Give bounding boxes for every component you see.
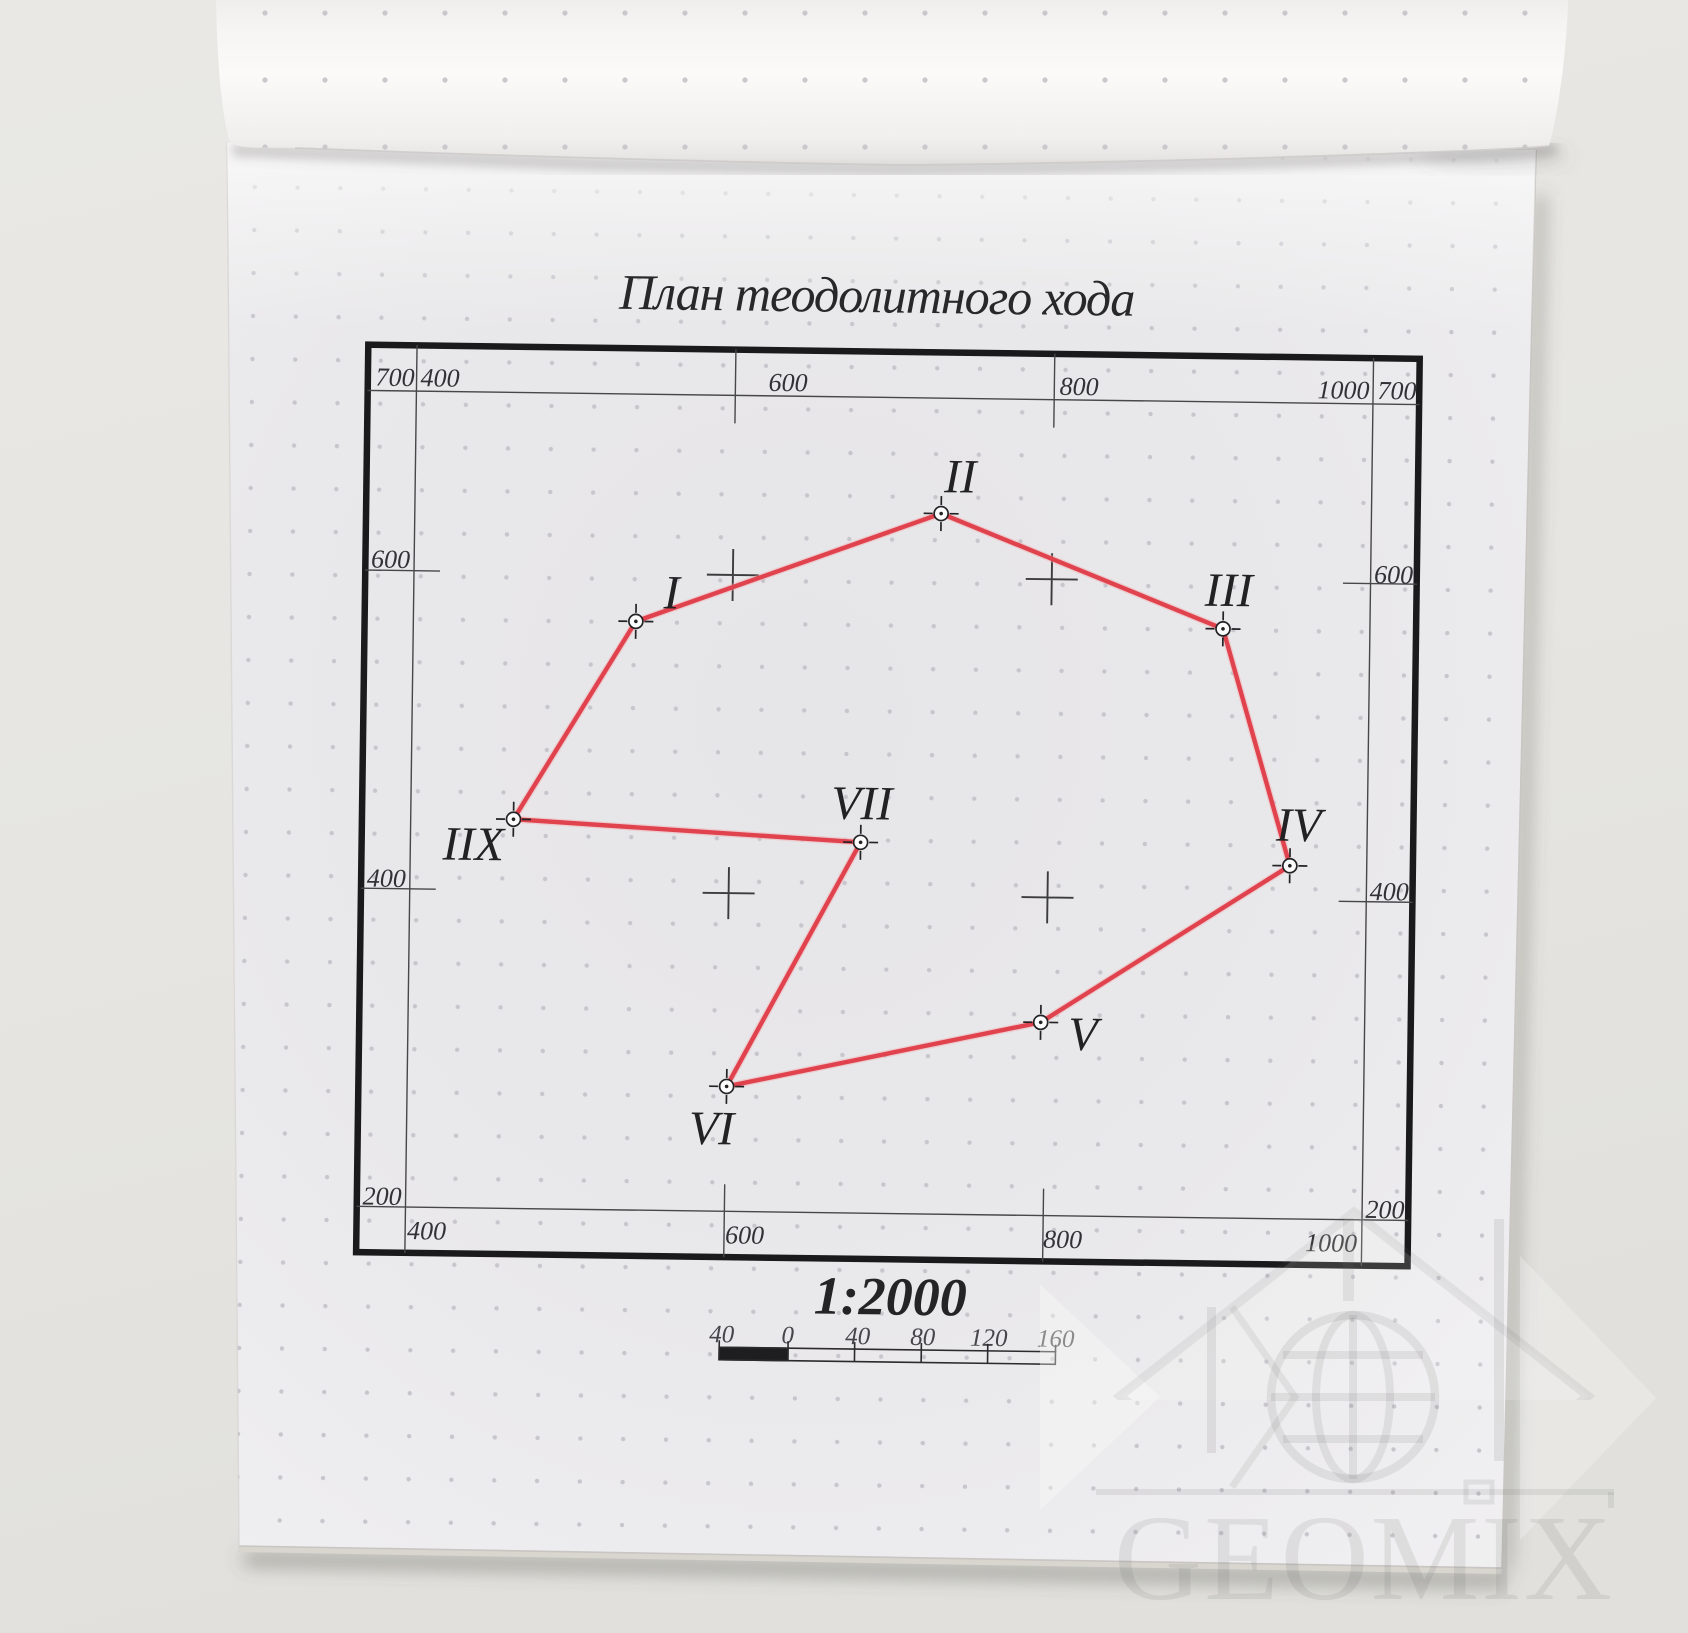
svg-text:1000: 1000 [1317,375,1369,405]
svg-text:600: 600 [1374,560,1413,590]
svg-text:400: 400 [420,363,459,393]
svg-text:40: 40 [709,1321,735,1348]
svg-text:IV: IV [1275,799,1327,853]
svg-text:II: II [943,450,979,503]
svg-text:IIX: IIX [441,817,506,871]
svg-text:VII: VII [831,777,895,831]
svg-text:400: 400 [1370,877,1409,907]
svg-text:GEOMIX: GEOMIX [1114,1491,1614,1626]
svg-text:600: 600 [725,1220,764,1250]
svg-text:200: 200 [362,1181,401,1211]
svg-text:400: 400 [407,1216,446,1246]
svg-text:800: 800 [1059,372,1098,402]
svg-text:1:2000: 1:2000 [813,1266,967,1328]
svg-text:700: 700 [375,363,414,393]
svg-text:III: III [1203,564,1255,618]
svg-text:План теодолитного хода: План теодолитного хода [618,264,1135,327]
svg-text:I: I [662,566,682,619]
svg-text:600: 600 [768,368,807,398]
svg-text:120: 120 [970,1325,1008,1353]
svg-text:400: 400 [367,863,406,893]
svg-text:VI: VI [689,1102,737,1156]
svg-text:800: 800 [1043,1225,1082,1255]
svg-text:40: 40 [845,1323,871,1350]
svg-text:700: 700 [1377,376,1416,406]
svg-text:600: 600 [371,545,410,575]
svg-text:80: 80 [910,1324,936,1351]
